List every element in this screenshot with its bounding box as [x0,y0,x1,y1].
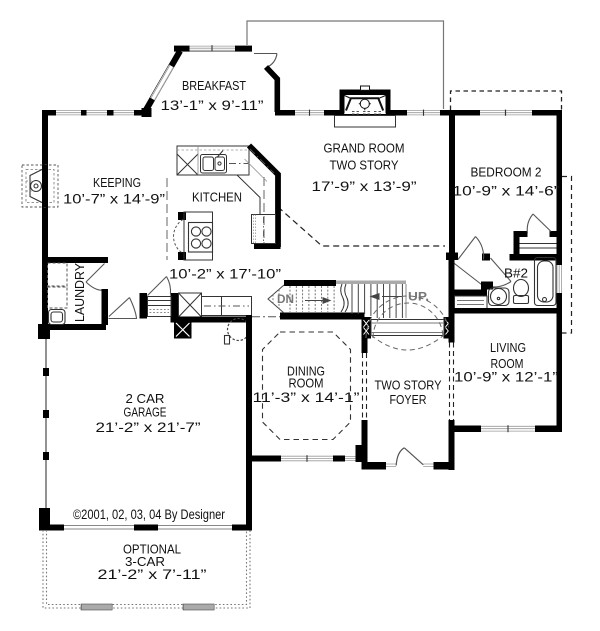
svg-text:B#2: B#2 [504,266,528,281]
svg-text:KEEPING: KEEPING [93,175,141,190]
svg-text:21’-2” x 21’-7”: 21’-2” x 21’-7” [96,419,201,435]
svg-text:10’-2” x 17’-10”: 10’-2” x 17’-10” [169,266,281,282]
svg-text:BREAKFAST: BREAKFAST [182,78,246,93]
svg-text:10’-7” x 14’-9”: 10’-7” x 14’-9” [63,191,165,207]
svg-text:DN: DN [277,294,294,306]
svg-text:10’-9” x 14’-6”: 10’-9” x 14’-6” [453,183,560,199]
svg-text:21’-2” x 7’-11”: 21’-2” x 7’-11” [98,566,207,582]
svg-text:13’-1” x 9’-11”: 13’-1” x 9’-11” [161,97,264,113]
svg-text:©2001, 02, 03, 04 By Designer: ©2001, 02, 03, 04 By Designer [73,507,225,522]
svg-text:17’-9” x 13’-9”: 17’-9” x 13’-9” [312,178,417,194]
svg-text:BEDROOM 2: BEDROOM 2 [471,165,542,180]
svg-text:11’-3” x 14’-1”: 11’-3” x 14’-1” [253,389,360,405]
svg-text:KITCHEN: KITCHEN [192,190,242,205]
svg-text:GRAND ROOM: GRAND ROOM [324,141,405,156]
svg-text:10’-9” x 12’-1”: 10’-9” x 12’-1” [454,369,558,385]
svg-text:GARAGE: GARAGE [124,405,167,420]
svg-text:TWO STORY: TWO STORY [330,158,399,173]
svg-text:TWO STORY: TWO STORY [375,378,442,393]
svg-text:FOYER: FOYER [390,392,427,407]
svg-text:LAUNDRY: LAUNDRY [72,263,87,322]
svg-text:LIVING: LIVING [490,340,526,355]
